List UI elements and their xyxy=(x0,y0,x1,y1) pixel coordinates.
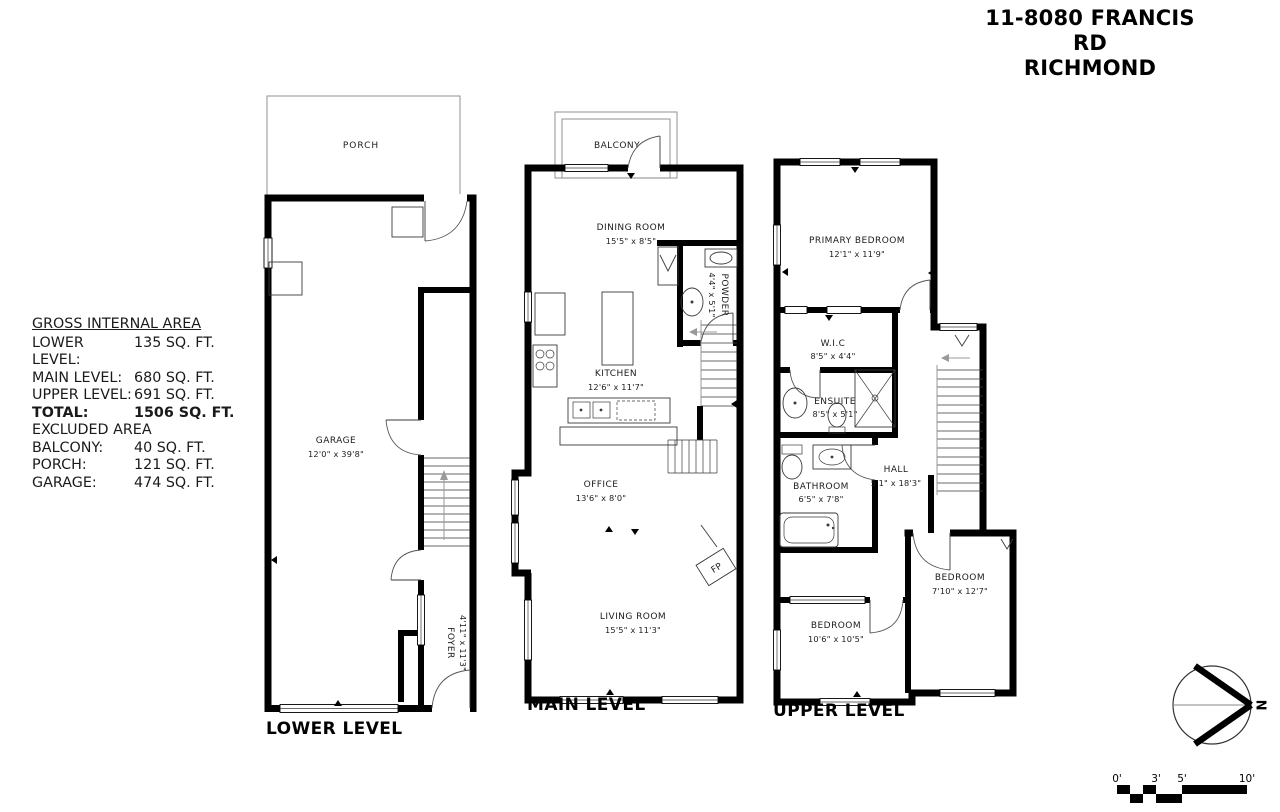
room-dims-office: 13'6" x 8'0" xyxy=(576,493,627,503)
room-dims-bedroom-right: 7'10" x 12'7" xyxy=(932,586,988,596)
room-dims-foyer: 4'11" x 11'3" xyxy=(458,615,468,671)
bedroom-right-door xyxy=(913,533,950,570)
area-summary-heading: GROSS INTERNAL AREA xyxy=(32,316,242,334)
room-label-kitchen: KITCHEN xyxy=(595,369,637,379)
room-dims-dining: 15'5" x 8'5" xyxy=(606,236,657,246)
upper-level-floorplan: PRIMARY BEDROOM 12'1" x 11'9" W.I.C 8'5"… xyxy=(765,145,1025,720)
bathroom-sink xyxy=(813,445,851,469)
room-label-primary: PRIMARY BEDROOM xyxy=(809,236,905,246)
primary-bedroom-door xyxy=(900,280,930,310)
upper-stairs xyxy=(937,354,983,495)
room-label-bathroom: BATHROOM xyxy=(793,482,849,492)
room-label-powder: POWDER xyxy=(719,274,729,317)
powder-toilet xyxy=(681,288,703,316)
lower-stairs xyxy=(424,458,470,546)
room-label-garage: GARAGE xyxy=(316,436,356,446)
room-dims-hall: 5'1" x 18'3" xyxy=(871,478,922,488)
utility-panel xyxy=(269,262,302,295)
scale-tick-0: 0' xyxy=(1112,773,1122,785)
room-dims-kitchen: 12'6" x 11'7" xyxy=(588,382,644,392)
area-row-balcony: BALCONY: 40 SQ. FT. xyxy=(32,440,242,458)
room-label-office: OFFICE xyxy=(584,480,619,490)
ensuite-shower xyxy=(855,370,895,427)
powder-closet xyxy=(658,247,678,285)
room-dims-bathroom: 6'5" x 7'8" xyxy=(798,494,843,504)
stairs-up-arrow xyxy=(440,470,448,480)
room-label-hall: HALL xyxy=(884,465,909,475)
lower-level-floorplan: PORCH xyxy=(258,90,483,740)
area-row-lower: LOWER LEVEL: 135 SQ. FT. xyxy=(32,335,242,370)
area-row-garage: GARAGE: 474 SQ. FT. xyxy=(32,475,242,493)
room-label-bedroom-right: BEDROOM xyxy=(935,573,985,583)
stairs-direction-arrow xyxy=(689,328,697,336)
room-label-wic: W.I.C xyxy=(821,339,846,349)
lower-level-label: LOWER LEVEL xyxy=(266,719,403,739)
room-dims-wic: 8'5" x 4'4" xyxy=(810,351,855,361)
upper-level-label: UPPER LEVEL xyxy=(773,701,905,721)
plan-title-line2: RICHMOND xyxy=(975,56,1205,81)
room-label-living: LIVING ROOM xyxy=(600,612,666,622)
room-dims-powder: 4'4" x 5'1" xyxy=(707,272,717,317)
room-label-balcony: BALCONY xyxy=(594,141,640,151)
room-label-dining: DINING ROOM xyxy=(597,223,666,233)
stairs-down-arrow xyxy=(941,354,949,362)
room-dims-ensuite: 8'5" x 5'1" xyxy=(812,409,857,419)
foyer-slider-window xyxy=(418,595,425,645)
room-dims-living: 15'5" x 11'3" xyxy=(605,625,661,635)
main-level-label: MAIN LEVEL xyxy=(527,695,646,715)
ensuite-sink xyxy=(783,388,807,418)
plan-title-line1: 11-8080 FRANCIS RD xyxy=(975,6,1205,56)
bedroom-left-door xyxy=(870,600,903,633)
garage-door-to-stairs xyxy=(386,420,421,455)
water-tank xyxy=(392,207,423,237)
room-dims-bedroom-left: 10'6" x 10'5" xyxy=(808,634,864,644)
fireplace-label: FP xyxy=(710,561,725,576)
area-row-porch: PORCH: 121 SQ. FT. xyxy=(32,457,242,475)
compass-north-label: N xyxy=(1253,700,1268,711)
excluded-area-heading: EXCLUDED AREA xyxy=(32,422,242,440)
scale-bar-segments xyxy=(1117,785,1247,803)
fireplace: FP xyxy=(696,525,736,586)
area-summary: GROSS INTERNAL AREA LOWER LEVEL: 135 SQ.… xyxy=(32,316,242,492)
lower-outer-walls xyxy=(265,195,477,713)
scale-tick-10: 10' xyxy=(1239,773,1255,785)
compass: N xyxy=(1168,652,1268,757)
scale-tick-5: 5' xyxy=(1177,773,1187,785)
powder-sink xyxy=(705,249,737,267)
foyer-entry-door xyxy=(432,670,470,712)
room-label-bedroom-left: BEDROOM xyxy=(811,621,861,631)
room-dims-primary: 12'1" x 11'9" xyxy=(829,249,885,259)
area-row-upper: UPPER LEVEL: 691 SQ. FT. xyxy=(32,387,242,405)
room-label-porch: PORCH xyxy=(343,141,379,151)
room-dims-garage: 12'0" x 39'8" xyxy=(308,449,364,459)
room-label-ensuite: ENSUITE xyxy=(814,397,856,407)
bathroom-door xyxy=(842,445,875,480)
porch-entry-door xyxy=(424,194,467,241)
room-label-foyer: FOYER xyxy=(445,627,455,658)
area-row-main: MAIN LEVEL: 680 SQ. FT. xyxy=(32,370,242,388)
floorplan-page: { "colors": {"wall": "#000000", "thin_li… xyxy=(0,0,1280,812)
main-level-floorplan: BALCONY xyxy=(505,95,755,735)
stair-door-lower xyxy=(391,550,421,580)
scale-tick-3: 3' xyxy=(1151,773,1161,785)
bathroom-tub xyxy=(780,513,838,547)
lower-windows xyxy=(264,238,398,713)
bathroom-toilet xyxy=(782,445,802,479)
room-label-foyer-group: FOYER 4'11" x 11'3" xyxy=(445,615,468,671)
plan-title: 11-8080 FRANCIS RD RICHMOND xyxy=(975,6,1205,81)
room-label-powder-group: POWDER 4'4" x 5'1" xyxy=(707,272,729,317)
scale-bar: 0' 3' 5' 10' xyxy=(1105,772,1275,808)
area-row-total: TOTAL: 1506 SQ. FT. xyxy=(32,405,242,423)
